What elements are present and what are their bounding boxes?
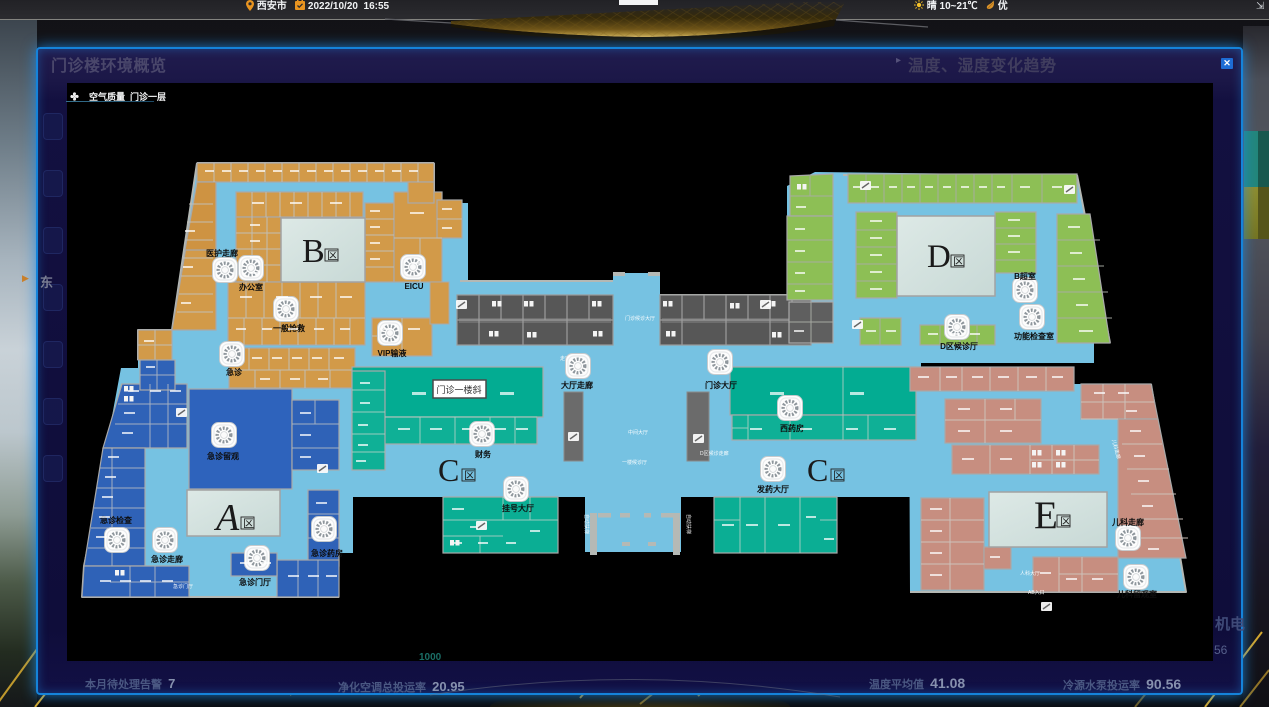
svg-text:门诊大厅: 门诊大厅: [705, 380, 737, 390]
svg-text:急诊门厅: 急诊门厅: [173, 583, 193, 590]
svg-text:区: 区: [243, 518, 254, 530]
svg-text:D区候诊厅: D区候诊厅: [940, 341, 978, 351]
svg-text:人科大厅: 人科大厅: [1020, 570, 1040, 577]
svg-text:门诊一楼斜: 门诊一楼斜: [436, 384, 481, 395]
svg-text:区: 区: [833, 470, 844, 482]
svg-text:功能检查室: 功能检查室: [1014, 331, 1054, 341]
svg-text:办公室: 办公室: [239, 282, 263, 292]
svg-text:B超室: B超室: [1014, 271, 1036, 281]
svg-text:发药大厅: 发药大厅: [756, 484, 789, 494]
svg-text:急诊门厅: 急诊门厅: [239, 577, 271, 587]
svg-text:急诊留观: 急诊留观: [207, 451, 239, 461]
svg-text:B: B: [302, 233, 325, 270]
svg-text:E: E: [1034, 494, 1058, 537]
svg-text:区: 区: [1060, 516, 1071, 528]
svg-text:C: C: [807, 452, 828, 488]
svg-text:AB入口: AB入口: [1028, 590, 1045, 596]
svg-text:区: 区: [953, 256, 964, 268]
svg-text:EICU: EICU: [404, 282, 423, 291]
svg-text:儿科留观室: 儿科留观室: [1116, 589, 1157, 599]
svg-text:大厅走廊: 大厅走廊: [561, 380, 593, 390]
svg-text:急诊药房: 急诊药房: [311, 548, 343, 558]
svg-text:中间大厅: 中间大厅: [628, 429, 648, 436]
svg-text:D: D: [927, 239, 951, 275]
svg-text:医护走廊: 医护走廊: [206, 248, 238, 258]
svg-text:儿科走廊: 儿科走廊: [1111, 517, 1144, 527]
svg-text:区: 区: [464, 470, 475, 482]
svg-text:门诊候诊大厅: 门诊候诊大厅: [625, 315, 655, 322]
svg-text:A: A: [213, 497, 240, 539]
svg-text:自动扶梯: 自动扶梯: [685, 514, 692, 534]
svg-text:C: C: [438, 452, 459, 488]
svg-text:挂号大厅: 挂号大厅: [502, 503, 534, 513]
svg-text:自动扶梯: 自动扶梯: [583, 514, 590, 534]
svg-text:一楼候诊厅: 一楼候诊厅: [622, 459, 647, 466]
svg-text:D区候诊走廊: D区候诊走廊: [700, 450, 729, 457]
svg-text:急诊: 急诊: [226, 367, 243, 377]
svg-text:区: 区: [327, 250, 338, 262]
svg-text:VIP输液: VIP输液: [378, 348, 407, 358]
svg-text:急诊走廊: 急诊走廊: [151, 554, 183, 564]
svg-text:财务: 财务: [474, 449, 492, 459]
